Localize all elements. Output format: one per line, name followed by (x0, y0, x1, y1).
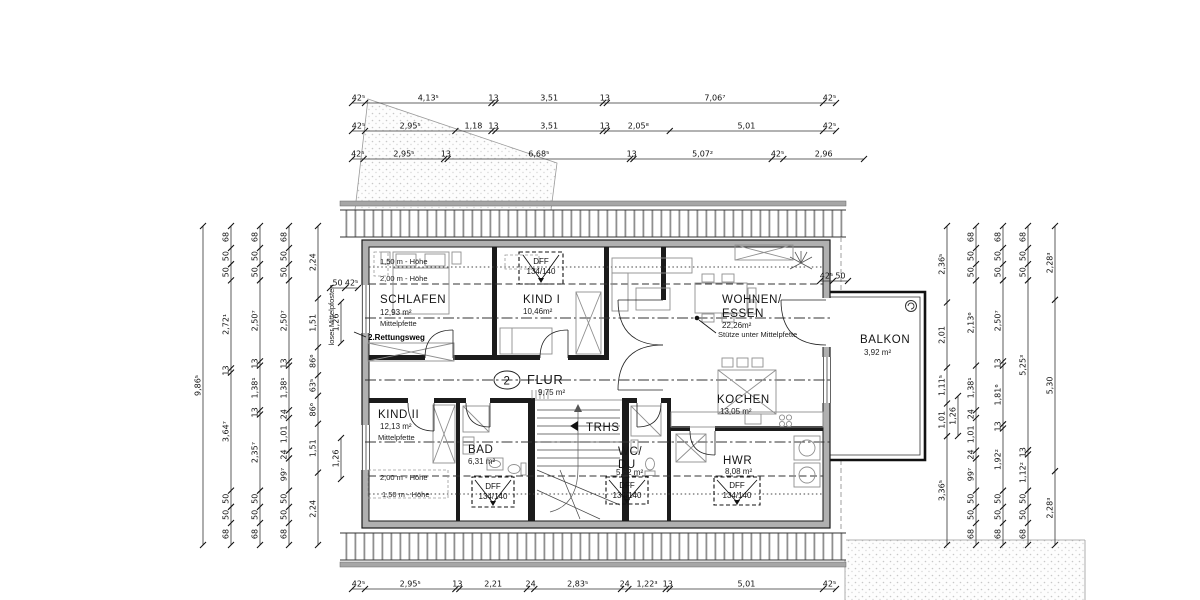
dim-label: 1,92² (994, 449, 1003, 470)
stuetze-label: Stütze unter Mittelpfette (718, 330, 797, 339)
dim-label: 2,24 (309, 500, 318, 518)
dim-label: 50 (967, 267, 976, 277)
dim-label: 50 (280, 251, 289, 261)
room-kind2-area: 12,13 m² (380, 422, 412, 431)
dim-chain-right-4: 6850505,25³131,12²505068 (1019, 223, 1032, 548)
dim-label: 1,26 (949, 407, 958, 425)
dim-chain-right-inner: 1,26 (949, 393, 962, 439)
dim-label: 2,05⁸ (628, 122, 649, 131)
dim-chain-left-2: 6850502,72¹133,64⁷505068 (222, 223, 235, 548)
dim-label: 99⁷ (967, 468, 976, 481)
dff-size: 134/140 (613, 491, 642, 500)
dim-label: 42⁵ (820, 272, 833, 281)
dim-label: 1,38¹ (280, 377, 289, 398)
dim-label: 68 (967, 232, 976, 242)
dim-label: 42⁵ (771, 150, 784, 159)
room-flur-label: FLUR (527, 372, 563, 387)
dim-label: 5,07² (692, 150, 713, 159)
dim-label: 13 (441, 150, 451, 159)
dim-label: 42⁵ (345, 279, 358, 288)
dim-label: 2,28³ (1046, 498, 1055, 519)
dim-label: 50 (967, 494, 976, 504)
dim-label: 2,50⁷ (251, 310, 260, 331)
dim-chain-right-1: 2,36⁵2,011,11⁵1,013,36⁵ (938, 223, 951, 548)
floorplan-page: DFF 134/140 DFF 134/140 DFF 134/140 DFF … (0, 0, 1200, 600)
dim-label: 1,12² (1019, 462, 1028, 483)
dim-chain-right-2: 6850502,13⁶1,38¹241,012499⁷505068 (967, 223, 980, 548)
window-left-upper (362, 285, 371, 333)
dim-label: 2,95⁵ (393, 150, 414, 159)
rettungsweg-label: 2.Rettungsweg (368, 333, 425, 342)
room-kind1-area: 10,46m² (523, 307, 553, 316)
dim-label: 68 (280, 232, 289, 242)
room-bad-area: 6,31 m² (468, 457, 495, 466)
dim-label: 63⁵ (309, 379, 318, 392)
dim-label: 50 (994, 510, 1003, 520)
dim-label: 3,64⁷ (222, 421, 231, 442)
dim-label: 50 (251, 267, 260, 277)
room-flur-area: 9,75 m² (538, 388, 565, 397)
dim-label: 50 (1019, 510, 1028, 520)
dim-label: 50 (1019, 251, 1028, 261)
dim-label: 2,21 (484, 580, 502, 589)
dim-label: 13 (663, 580, 673, 589)
dim-label: 42⁵ (823, 580, 836, 589)
dim-label: 13 (488, 122, 498, 131)
dim-label: 2,36⁵ (938, 254, 947, 275)
dim-label: 24 (620, 580, 630, 589)
height-150-top-label: 1,50 m - Höhe (380, 257, 428, 266)
dim-label: 13 (280, 358, 289, 368)
dim-label: 50 (222, 251, 231, 261)
dff-size: 134/140 (723, 491, 752, 500)
dim-label: 3,51 (540, 122, 558, 131)
dim-label: 1,51 (309, 314, 318, 332)
dim-label: 86⁶ (308, 403, 317, 416)
dim-chain-left-5: 2,241,5186⁶63⁵86⁶1,512,24 (308, 223, 321, 548)
dim-label: 42⁵ (823, 94, 836, 103)
dim-label: 68 (994, 232, 1003, 242)
dim-label: 3,51 (540, 94, 558, 103)
dim-label: 1,38¹ (967, 377, 976, 398)
dim-label: 2,01 (938, 326, 947, 344)
mittelpfette-top-label: Mittelpfette (380, 319, 417, 328)
dim-label: 13 (251, 407, 260, 417)
room-schlafen-label: SCHLAFEN (380, 294, 446, 306)
room-wohnen-area: 22,26m² (722, 321, 752, 330)
dim-chain-top-row-1: 42⁵4,13⁵133,51137,06⁷42⁵ (349, 94, 839, 107)
height-200-bottom-label: 2,00 m - Höhe (380, 473, 428, 482)
height-200-top-label: 2,00 m - Höhe (380, 274, 428, 283)
dim-label: 2,96 (815, 150, 833, 159)
dim-label: 42⁵ (352, 122, 365, 131)
dim-label: 42⁵ (352, 580, 365, 589)
dim-label: 50 (251, 510, 260, 520)
room-balkon-area: 3,92 m² (864, 348, 891, 357)
dim-label: 13 (627, 150, 637, 159)
floorplan-drawing: DFF 134/140 DFF 134/140 DFF 134/140 DFF … (0, 0, 1200, 600)
dim-label: 68 (1019, 232, 1028, 242)
dim-label: 68 (222, 529, 231, 539)
floor-number: 2 (504, 376, 511, 388)
dim-label: 42⁵ (823, 122, 836, 131)
dim-label: 2,72¹ (222, 314, 231, 335)
dim-label: 24 (526, 580, 536, 589)
dim-label: 50 (1019, 494, 1028, 504)
dim-label: 13 (994, 421, 1003, 431)
window-left-lower (362, 425, 371, 470)
terrain-hatch-topleft (355, 99, 557, 210)
room-wohnen-label-2: ESSEN (722, 308, 764, 320)
dim-label: 50 (1019, 267, 1028, 277)
dim-label: 50 (994, 267, 1003, 277)
dim-label: 13 (600, 94, 610, 103)
dim-label: 13 (222, 365, 231, 375)
dim-label: 2,95⁵ (400, 580, 421, 589)
dim-label: 50 (280, 494, 289, 504)
dff-label: DFF (533, 257, 549, 266)
dim-label: 2,83⁵ (567, 580, 588, 589)
dim-label: 50 (994, 251, 1003, 261)
dim-label: 4,13⁵ (418, 94, 439, 103)
dim-label: 5,30 (1046, 377, 1055, 395)
room-kind1-label: KIND I (523, 294, 560, 306)
roof-eaves-bottom (340, 533, 846, 567)
dff-label: DFF (729, 481, 745, 490)
dim-label: 5,01 (737, 122, 755, 131)
dim-label: 6,68⁵ (528, 150, 549, 159)
dim-label: 13 (600, 122, 610, 131)
dim-label: 68 (251, 529, 260, 539)
room-bad-label: BAD (468, 444, 493, 456)
dim-label: 50 (222, 510, 231, 520)
dim-label: 24 (280, 449, 289, 459)
dim-label: 42⁵ (351, 150, 364, 159)
dim-label: 68 (222, 232, 231, 242)
room-schlafen-area: 12,93 m² (380, 308, 412, 317)
dim-label: 1,01 (280, 425, 289, 443)
dim-label: 2,13⁶ (967, 312, 976, 333)
mittelpfette-bottom-label: Mittelpfette (378, 433, 415, 442)
dim-label: 13 (251, 358, 260, 368)
dim-label: 86⁶ (309, 355, 318, 368)
dim-label: 68 (251, 232, 260, 242)
dim-label: 13 (452, 580, 462, 589)
dim-chain-left-inner-lower: 1,26 (332, 435, 345, 482)
room-kind2-label: KIND II (378, 409, 419, 421)
height-150-bottom-label: 1,50 m - Höhe (382, 490, 430, 499)
dff-label: DFF (485, 482, 501, 491)
dim-label: 13 (488, 94, 498, 103)
dim-label: 50 (994, 494, 1003, 504)
room-hwr-area: 8,08 m² (725, 467, 752, 476)
room-balkon-label: BALKON (860, 334, 910, 346)
terrain-hatch-bottomright (845, 540, 1085, 600)
dim-chain-bottom-row: 42⁵2,95⁵132,21242,83⁵241,22³135,0142⁵ (349, 580, 839, 593)
room-trhs-label: TRHS (586, 422, 620, 434)
dim-label: 68 (994, 529, 1003, 539)
dim-label: 1,51 (309, 439, 318, 457)
dim-label: 1,18 (465, 122, 483, 131)
dim-label: 2,95⁵ (400, 122, 421, 131)
dim-label: 68 (967, 529, 976, 539)
dim-label: 99⁷ (280, 468, 289, 481)
balcony (830, 292, 925, 460)
dim-label: 1,26 (332, 450, 341, 468)
dim-label: 50 (280, 510, 289, 520)
dim-label: 1,81⁶ (994, 384, 1003, 405)
dim-label: 9,86⁵ (194, 375, 203, 396)
dim-label: 50 (967, 251, 976, 261)
dim-label: 50 (280, 267, 289, 277)
dff-size: 134/140 (527, 267, 556, 276)
dim-label: 50 (251, 494, 260, 504)
dim-label: 50 (332, 279, 342, 288)
room-kochen-label: KOCHEN (717, 394, 770, 406)
dff-size: 134/140 (479, 492, 508, 501)
dim-label: 50 (251, 251, 260, 261)
room-wcdu-area: 5,62 m² (616, 468, 643, 477)
dim-chain-left-3: 6850502,50⁷131,38¹132,35⁷505068 (251, 223, 264, 548)
room-wcdu-label-1: WC/ (618, 446, 642, 458)
dim-label: 50 (967, 510, 976, 520)
dim-label: 5,25³ (1019, 355, 1028, 376)
dim-label: 50 (222, 494, 231, 504)
room-hwr-label: HWR (723, 455, 752, 467)
dim-label: 1,38¹ (251, 377, 260, 398)
dim-label: 13 (1019, 447, 1028, 457)
dim-label: 1,22³ (637, 580, 658, 589)
dff-label: DFF (619, 481, 635, 490)
dim-chain-left-4: 6850502,50⁷131,38¹241,012499⁷505068 (280, 223, 293, 548)
dim-label: 1,01 (938, 411, 947, 429)
dim-chain-right-3: 6850502,50⁷131,81⁶131,92²505068 (994, 223, 1007, 548)
dim-label: 24 (967, 409, 976, 419)
dim-label: 7,06⁷ (704, 94, 725, 103)
dim-label: 2,24 (309, 253, 318, 271)
dim-label: 2,35⁷ (251, 442, 260, 463)
dim-label: 24 (280, 409, 289, 419)
dim-label: 2,50⁷ (994, 310, 1003, 331)
dim-label: 50 (222, 267, 231, 277)
dim-label: 24 (967, 449, 976, 459)
dim-label: 68 (280, 529, 289, 539)
dim-label: 1,26 (332, 314, 341, 332)
room-wohnen-label-1: WOHNEN/ (722, 294, 782, 306)
balcony-door-opening (822, 298, 831, 347)
dim-label: 1,11⁵ (938, 375, 947, 396)
dim-label: 42⁵ (352, 94, 365, 103)
dim-label: 3,36⁵ (938, 480, 947, 501)
dim-label: 2,50⁷ (280, 310, 289, 331)
dim-label: 5,01 (737, 580, 755, 589)
dim-label: 13 (994, 358, 1003, 368)
dim-label: 2,28³ (1046, 252, 1055, 273)
room-kochen-area: 13,05 m² (720, 407, 752, 416)
dim-chain-right-5: 2,28³5,302,28³ (1046, 223, 1059, 548)
dim-label: 50 (835, 272, 845, 281)
dim-label: 1,01 (967, 425, 976, 443)
dim-chain-left-1: 9,86⁵ (194, 223, 207, 548)
dim-label: 68 (1019, 529, 1028, 539)
